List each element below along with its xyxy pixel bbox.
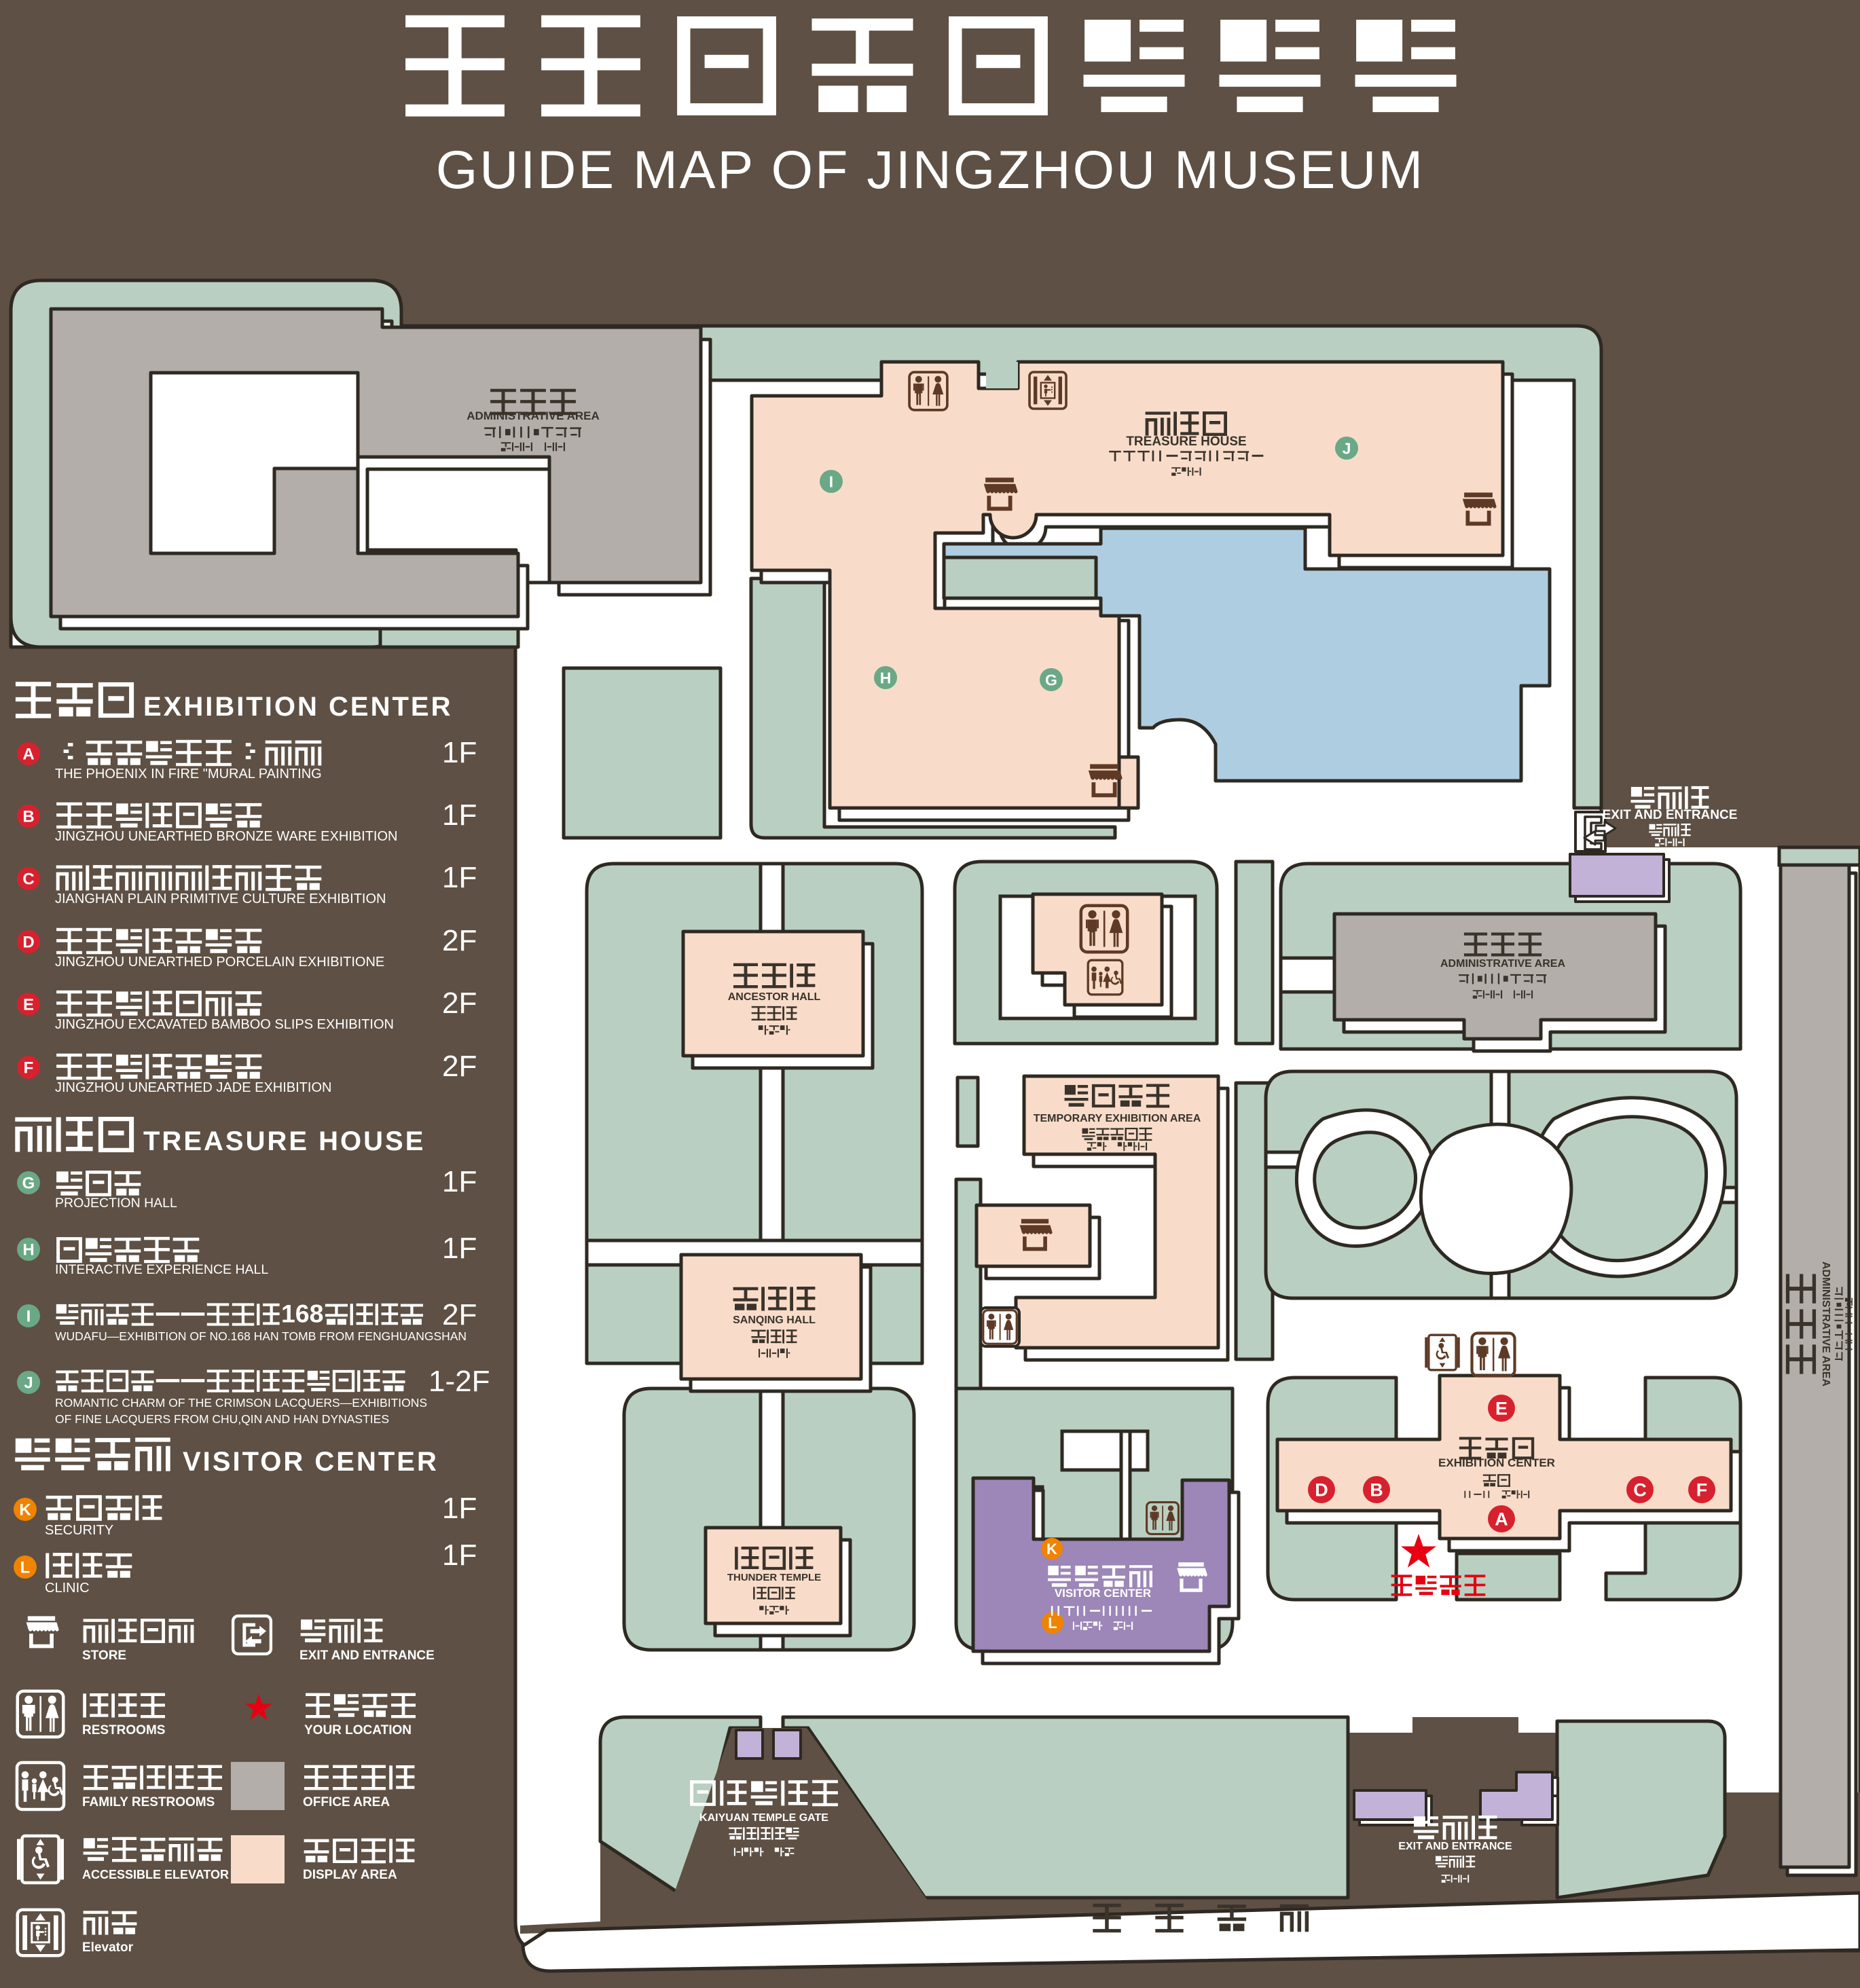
svg-text:B: B — [1370, 1480, 1383, 1501]
svg-text:THUNDER TEMPLE: THUNDER TEMPLE — [727, 1572, 821, 1583]
svg-text:EXHIBITION CENTER: EXHIBITION CENTER — [1438, 1456, 1555, 1469]
svg-text:H: H — [22, 1241, 34, 1259]
svg-text:OFFICE AREA: OFFICE AREA — [303, 1795, 390, 1809]
svg-text:I: I — [829, 473, 833, 490]
svg-text:EXIT AND ENTRANCE: EXIT AND ENTRANCE — [1398, 1841, 1512, 1852]
svg-text:EXIT AND ENTRANCE: EXIT AND ENTRANCE — [299, 1649, 435, 1663]
svg-text:G: G — [22, 1175, 35, 1193]
svg-text:GUIDE MAP OF JINGZHOU MUSEUM: GUIDE MAP OF JINGZHOU MUSEUM — [436, 139, 1425, 200]
svg-text:CLINIC: CLINIC — [45, 1581, 90, 1596]
svg-text:TREASURE HOUSE: TREASURE HOUSE — [1126, 435, 1246, 449]
svg-text:D: D — [1315, 1480, 1328, 1501]
svg-text:E: E — [1495, 1399, 1508, 1419]
svg-text:INTERACTIVE EXPERIENCE HALL: INTERACTIVE EXPERIENCE HALL — [55, 1262, 268, 1277]
svg-text:WUDAFU—EXHIBITION OF NO.168 HA: WUDAFU—EXHIBITION OF NO.168 HAN TOMB FRO… — [55, 1329, 467, 1343]
svg-text:JINGZHOU UNEARTHED BRONZE WARE: JINGZHOU UNEARTHED BRONZE WARE EXHIBITIO… — [55, 829, 397, 844]
svg-text:ROMANTIC CHARM OF THE CRIMSON: ROMANTIC CHARM OF THE CRIMSON LACQUERS—E… — [55, 1396, 427, 1410]
svg-text:K: K — [1046, 1541, 1057, 1558]
svg-text:C: C — [22, 870, 34, 889]
svg-text:J: J — [24, 1374, 33, 1393]
svg-text:E: E — [23, 996, 34, 1014]
svg-text:F: F — [1696, 1480, 1708, 1501]
svg-text:F: F — [24, 1059, 34, 1078]
svg-text:EXHIBITION CENTER: EXHIBITION CENTER — [143, 692, 452, 722]
svg-text:TEMPORARY EXHIBITION AREA: TEMPORARY EXHIBITION AREA — [1034, 1113, 1201, 1124]
svg-text:JINGZHOU EXCAVATED BAMBOO SLIP: JINGZHOU EXCAVATED BAMBOO SLIPS EXHIBITI… — [55, 1017, 394, 1032]
svg-text:1-2F: 1-2F — [428, 1365, 490, 1398]
svg-text:2F: 2F — [442, 1050, 477, 1083]
svg-text:STORE: STORE — [82, 1649, 126, 1663]
svg-text:C: C — [1633, 1480, 1647, 1501]
svg-text:SECURITY: SECURITY — [45, 1523, 113, 1538]
svg-text:D: D — [22, 934, 34, 952]
svg-text:Elevator: Elevator — [82, 1940, 134, 1955]
svg-text:OF FINE LACQUERS FROM CHU,QIN: OF FINE LACQUERS FROM CHU,QIN AND HAN DY… — [55, 1412, 389, 1426]
svg-text:A: A — [22, 745, 34, 764]
svg-text:ADMINISTRATIVE AREA: ADMINISTRATIVE AREA — [1440, 958, 1565, 970]
svg-text:JINGZHOU UNEARTHED JADE EXHIBI: JINGZHOU UNEARTHED JADE EXHIBITION — [55, 1080, 331, 1095]
svg-text:168: 168 — [281, 1300, 323, 1328]
svg-text:KAIYUAN TEMPLE GATE: KAIYUAN TEMPLE GATE — [699, 1812, 828, 1824]
svg-text:JIANGHAN PLAIN PRIMITIVE CULTU: JIANGHAN PLAIN PRIMITIVE CULTURE EXHIBIT… — [55, 891, 386, 906]
svg-text:K: K — [19, 1501, 31, 1520]
svg-text:I: I — [26, 1308, 31, 1326]
svg-text:1F: 1F — [442, 1165, 477, 1198]
svg-text:EXIT AND ENTRANCE: EXIT AND ENTRANCE — [1603, 808, 1738, 822]
svg-text:A: A — [1495, 1509, 1508, 1530]
svg-text:FAMILY RESTROOMS: FAMILY RESTROOMS — [82, 1795, 215, 1809]
svg-text:PROJECTION HALL: PROJECTION HALL — [55, 1196, 177, 1211]
svg-text:RESTROOMS: RESTROOMS — [82, 1723, 165, 1737]
svg-text:ANCESTOR HALL: ANCESTOR HALL — [728, 991, 821, 1003]
svg-text:DISPLAY AREA: DISPLAY AREA — [303, 1868, 397, 1882]
svg-text:L: L — [1048, 1615, 1057, 1632]
svg-text:H: H — [880, 669, 892, 686]
svg-text:JINGZHOU UNEARTHED PORCELAIN E: JINGZHOU UNEARTHED PORCELAIN EXHIBITIONE — [55, 955, 384, 970]
svg-text:2F: 2F — [442, 1298, 477, 1331]
svg-text:1F: 1F — [442, 736, 477, 769]
svg-text:1F: 1F — [442, 1232, 477, 1265]
svg-text:THE PHOENIX IN FIRE "MURAL PAI: THE PHOENIX IN FIRE "MURAL PAINTING — [55, 767, 322, 781]
svg-text:VISITOR CENTER: VISITOR CENTER — [183, 1447, 439, 1477]
svg-text:VISITOR CENTER: VISITOR CENTER — [1055, 1587, 1151, 1600]
svg-text:1F: 1F — [442, 1492, 477, 1525]
svg-text:1F: 1F — [442, 798, 477, 832]
svg-text:L: L — [20, 1559, 31, 1577]
svg-text:ADMINISTRATIVE AREA: ADMINISTRATIVE AREA — [467, 409, 600, 422]
svg-text:B: B — [22, 808, 34, 826]
svg-text:1F: 1F — [442, 1539, 477, 1572]
svg-text:SANQING HALL: SANQING HALL — [733, 1314, 816, 1326]
svg-text:2F: 2F — [442, 924, 477, 957]
svg-text:YOUR LOCATION: YOUR LOCATION — [304, 1723, 412, 1737]
svg-text:TREASURE HOUSE: TREASURE HOUSE — [143, 1126, 425, 1156]
svg-text:ACCESSIBLE ELEVATOR: ACCESSIBLE ELEVATOR — [82, 1868, 229, 1881]
svg-text:J: J — [1343, 439, 1351, 457]
svg-text:G: G — [1045, 671, 1057, 688]
svg-text:ADMINISTRATIVE AREA: ADMINISTRATIVE AREA — [1820, 1262, 1831, 1386]
svg-text:2F: 2F — [442, 987, 477, 1020]
svg-text:1F: 1F — [442, 861, 477, 894]
